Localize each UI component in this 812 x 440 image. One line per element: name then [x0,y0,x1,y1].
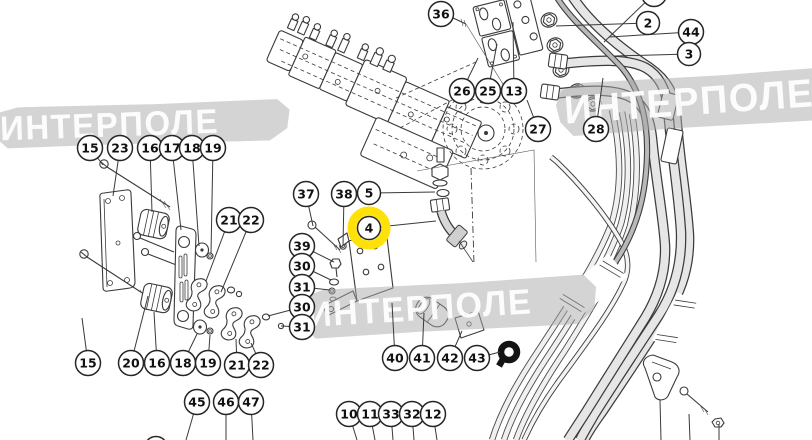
svg-text:36: 36 [432,6,450,21]
svg-text:31: 31 [293,279,310,294]
callout-43[interactable]: 43 [465,346,490,371]
callout-3[interactable]: 3 [678,43,701,66]
svg-text:25: 25 [479,83,496,98]
callout-38[interactable]: 38 [332,182,357,207]
svg-text:10: 10 [340,406,358,421]
svg-text:40: 40 [386,350,404,365]
svg-text:30: 30 [293,299,311,314]
callout-40[interactable]: 40 [383,346,408,371]
svg-text:4: 4 [365,220,374,235]
callout-42[interactable]: 42 [438,346,463,371]
callout-28[interactable]: 28 [584,117,609,142]
svg-text:13: 13 [505,83,522,98]
svg-text:37: 37 [297,186,314,201]
svg-text:41: 41 [413,350,430,365]
callout-23[interactable]: 23 [108,136,133,161]
svg-text:3: 3 [685,46,694,61]
svg-text:17: 17 [163,140,180,155]
callout-15[interactable]: 15 [76,351,101,376]
callout-12[interactable]: 12 [421,402,446,427]
callout-28-cut[interactable]: 28 [642,0,667,7]
callout-47[interactable]: 47 [239,390,264,415]
callout-16[interactable]: 16 [145,351,170,376]
svg-text:2: 2 [644,15,653,30]
svg-text:16: 16 [148,355,166,370]
svg-text:18: 18 [174,355,191,370]
svg-text:16: 16 [141,140,159,155]
callout-overlay: 3628244326251327281523161718192122373854… [0,0,812,440]
svg-text:46: 46 [217,394,235,409]
svg-text:32: 32 [403,406,420,421]
svg-text:19: 19 [199,355,216,370]
svg-text:22: 22 [252,357,269,372]
callout-22[interactable]: 22 [239,208,264,233]
callout-19[interactable]: 19 [201,136,226,161]
svg-text:45: 45 [188,394,205,409]
callout-2[interactable]: 2 [637,12,660,35]
callout-45[interactable]: 45 [185,390,210,415]
svg-text:22: 22 [242,212,259,227]
leader-line-19 [211,148,213,253]
leader-line-18 [192,148,199,246]
callout-44[interactable]: 44 [679,20,704,45]
callout-20[interactable]: 20 [119,351,144,376]
svg-text:21: 21 [220,212,237,227]
svg-text:12: 12 [424,406,441,421]
svg-text:33: 33 [382,406,399,421]
svg-text:31: 31 [293,319,310,334]
svg-text:5: 5 [365,185,374,200]
callout-4[interactable]: 4 [352,211,386,245]
callout-27[interactable]: 27 [526,117,551,142]
leader-line-2 [556,23,648,26]
svg-text:30: 30 [293,258,311,273]
svg-text:47: 47 [242,394,259,409]
callout-13[interactable]: 13 [502,79,527,104]
parts-diagram: ИНТЕРПОЛЕ ИНТЕРПОЛЕ ИНТЕРПОЛЕ 3628244326… [0,0,812,440]
callout-15[interactable]: 15 [78,136,103,161]
svg-text:44: 44 [682,24,700,39]
svg-text:23: 23 [111,140,128,155]
callout-25[interactable]: 25 [476,79,501,104]
svg-text:42: 42 [441,350,458,365]
callout-36[interactable]: 36 [429,2,454,27]
svg-text:19: 19 [204,140,221,155]
callout-21[interactable]: 21 [225,353,250,378]
callout-41[interactable]: 41 [410,346,435,371]
svg-text:20: 20 [122,355,140,370]
callout-31[interactable]: 31 [290,315,315,340]
callout-18[interactable]: 18 [171,351,196,376]
svg-text:28: 28 [645,0,662,1]
svg-text:11: 11 [361,406,378,421]
svg-text:26: 26 [453,83,471,98]
callout-5[interactable]: 5 [358,182,381,205]
svg-text:27: 27 [529,121,546,136]
callout-19[interactable]: 19 [196,351,221,376]
callout-26[interactable]: 26 [450,79,475,104]
callout-46[interactable]: 46 [214,390,239,415]
svg-text:28: 28 [587,121,604,136]
svg-text:39: 39 [293,238,310,253]
svg-text:18: 18 [183,140,200,155]
callout-5-cut[interactable]: 5 [145,437,168,440]
svg-text:15: 15 [81,140,98,155]
svg-text:38: 38 [335,186,352,201]
callout-22[interactable]: 22 [249,353,274,378]
svg-text:15: 15 [79,355,96,370]
svg-text:21: 21 [228,357,245,372]
callout-37[interactable]: 37 [294,182,319,207]
svg-text:43: 43 [468,350,485,365]
